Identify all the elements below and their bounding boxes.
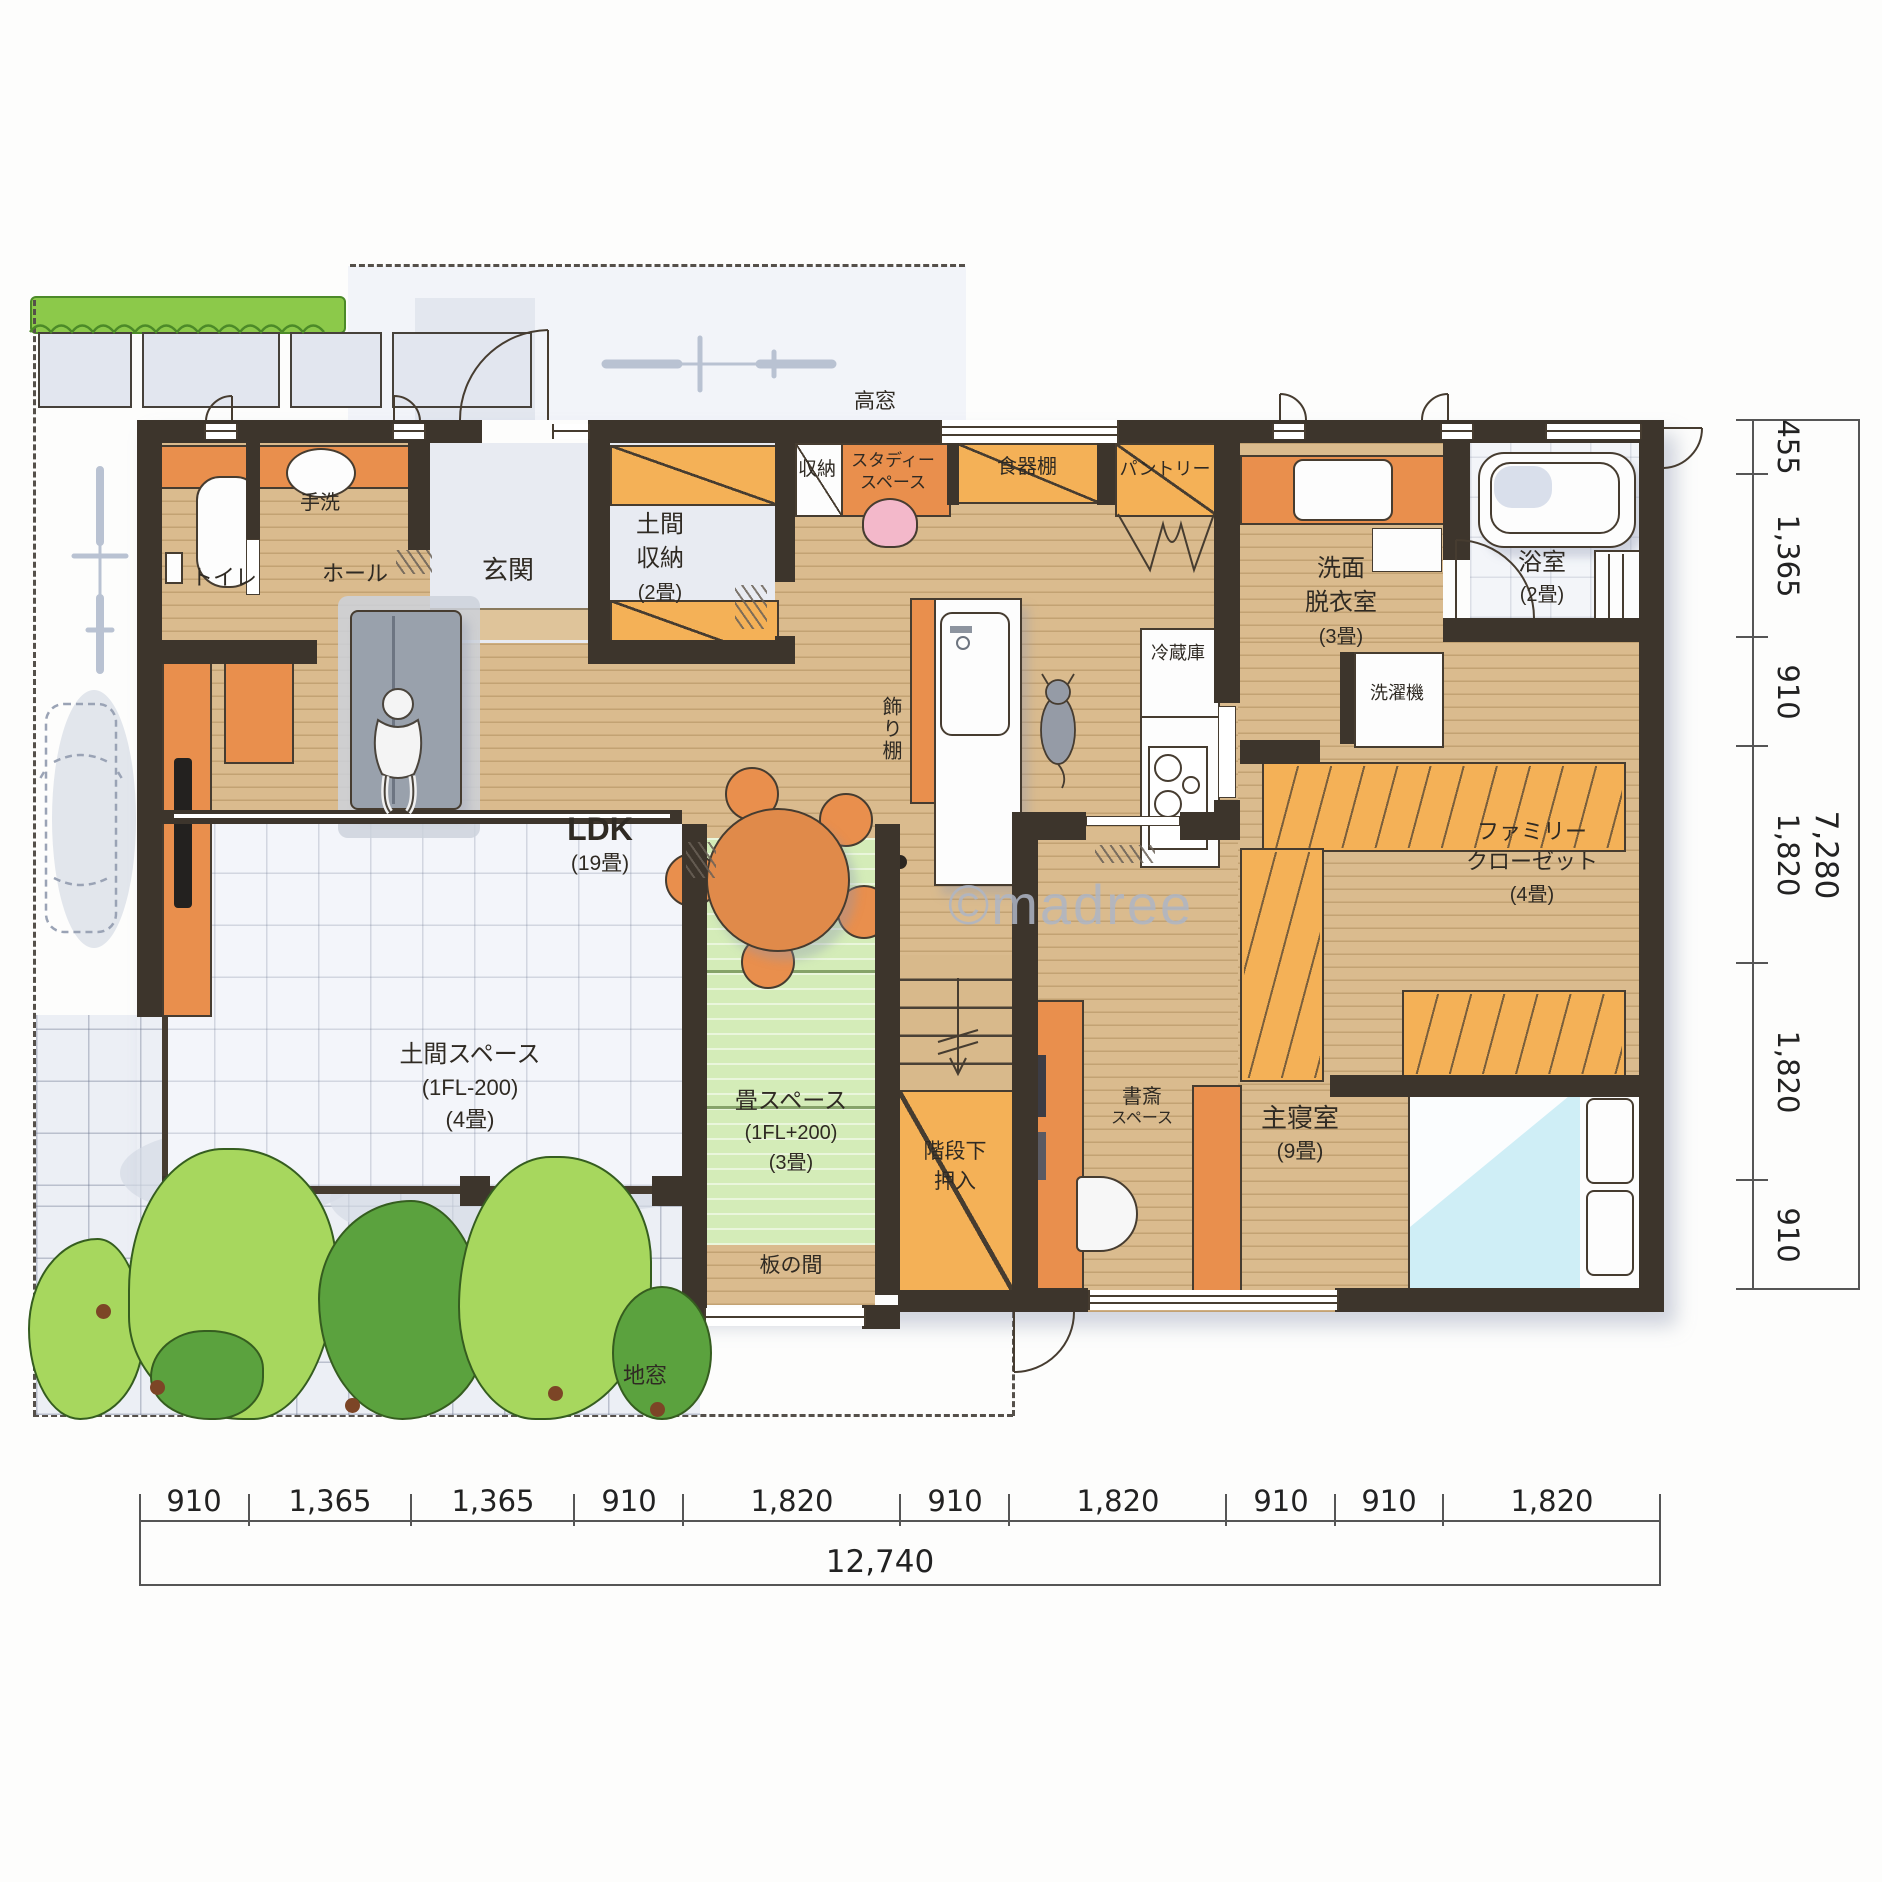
room-label-hall: ホール [322, 562, 388, 586]
label-study-nook-1: スタディー [851, 452, 935, 471]
dim-bottom-9: 1,820 [1510, 1484, 1593, 1518]
room-label-bathroom-size: (2畳) [1520, 584, 1564, 606]
floor-plan-canvas: トイレ 手洗 ホール 玄関 土間 収納 (2畳) 収納 スタディー スペース 高… [0, 0, 1882, 1882]
car-outline [38, 704, 124, 932]
bicycle-vertical [74, 470, 126, 670]
bicycle-horizontal [606, 338, 832, 390]
label-itanoma: 板の間 [760, 1254, 823, 1277]
room-label-doma-storage-2: 収納 [636, 546, 684, 572]
room-label-washroom-size: (3畳) [1319, 626, 1363, 648]
bath-exterior-door [1664, 428, 1702, 468]
dim-line-right-1 [1752, 420, 1754, 1289]
dim-line-bottom-2 [140, 1584, 1660, 1586]
person-figure [375, 689, 421, 812]
label-pantry: パントリー [1120, 460, 1211, 480]
label-study-nook-2: スペース [860, 474, 926, 493]
hedge-scallops [30, 326, 324, 333]
dim-line-right-2 [1858, 420, 1860, 1289]
label-refrigerator: 冷蔵庫 [1151, 644, 1205, 664]
room-label-doma-storage-size: (2畳) [638, 582, 682, 604]
room-label-washroom-1: 洗面 [1317, 556, 1365, 582]
room-label-entrance: 玄関 [482, 556, 534, 585]
dim-right-0: 455 [1771, 419, 1805, 474]
dim-bottom-2: 1,365 [451, 1484, 534, 1518]
room-label-tatami-size: (3畳) [769, 1152, 813, 1174]
bedroom-exterior-door [1014, 1312, 1074, 1372]
room-label-bedroom: 主寝室 [1261, 1104, 1339, 1133]
berry-dot [345, 1398, 360, 1413]
room-label-toilet: トイレ [191, 566, 257, 590]
dim-bottom-total: 12,740 [826, 1544, 934, 1580]
watermark: ©madree [948, 872, 1193, 937]
dim-bottom-4: 1,820 [750, 1484, 833, 1518]
room-label-handwash: 手洗 [300, 492, 340, 514]
dim-right-5: 910 [1771, 1207, 1805, 1262]
room-label-bedroom-size: (9畳) [1277, 1140, 1324, 1163]
room-label-tatami: 畳スペース [735, 1088, 847, 1113]
dim-bottom-8: 910 [1361, 1484, 1416, 1518]
stairs-arrow [938, 978, 978, 1074]
room-label-bathroom: 浴室 [1518, 550, 1566, 576]
dim-right-4: 1,820 [1771, 1030, 1805, 1113]
dim-bottom-6: 1,820 [1076, 1484, 1159, 1518]
bush [612, 1286, 712, 1420]
dog-figure [1041, 674, 1075, 788]
label-display-shelf: 飾り棚 [876, 696, 905, 762]
room-label-doma-space: 土間スペース [399, 1042, 540, 1068]
room-label-doma-space-level: (1FL-200) [422, 1076, 519, 1100]
pantry-bifold-door [1118, 514, 1214, 570]
berry-dot [650, 1402, 665, 1417]
entrance-door-arc [460, 330, 548, 420]
dim-bottom-5: 910 [927, 1484, 982, 1518]
room-label-tatami-level: (1FL+200) [745, 1122, 838, 1144]
berry-dot [96, 1304, 111, 1319]
label-jimado: 地窓 [623, 1364, 667, 1388]
label-study-space-2: スペース [1111, 1110, 1173, 1128]
room-label-family-closet-2: クローゼット [1466, 850, 1598, 874]
dim-bottom-1: 1,365 [288, 1484, 371, 1518]
room-label-ldk-size: (19畳) [571, 852, 629, 875]
room-label-doma-space-size: (4畳) [446, 1108, 495, 1132]
label-dish-cabinet: 食器棚 [997, 456, 1057, 478]
label-under-stairs-1: 階段下 [924, 1140, 987, 1163]
room-label-doma-storage-1: 土間 [636, 512, 684, 538]
bush [150, 1330, 264, 1420]
berry-dot [548, 1386, 563, 1401]
room-label-washroom-2: 脱衣室 [1305, 590, 1377, 616]
dim-bottom-3: 910 [601, 1484, 656, 1518]
plan-linework [0, 0, 1882, 1882]
label-small-closet: 収納 [798, 460, 836, 481]
room-label-ldk: LDK [567, 812, 633, 847]
dim-right-3: 1,820 [1771, 813, 1805, 896]
label-high-window: 高窓 [854, 390, 896, 413]
berry-dot [150, 1380, 165, 1395]
dim-bottom-7: 910 [1253, 1484, 1308, 1518]
dim-right-1: 1,365 [1771, 514, 1805, 597]
dim-right-total: 7,280 [1808, 811, 1844, 900]
label-study-space-1: 書斎 [1122, 1086, 1162, 1108]
dim-right-2: 910 [1771, 664, 1805, 719]
room-label-family-closet-1: ファミリー [1477, 820, 1587, 844]
room-label-family-closet-size: (4畳) [1510, 884, 1554, 906]
dim-bottom-0: 910 [166, 1484, 221, 1518]
label-washing-machine: 洗濯機 [1370, 684, 1424, 704]
label-under-stairs-2: 押入 [934, 1170, 976, 1193]
